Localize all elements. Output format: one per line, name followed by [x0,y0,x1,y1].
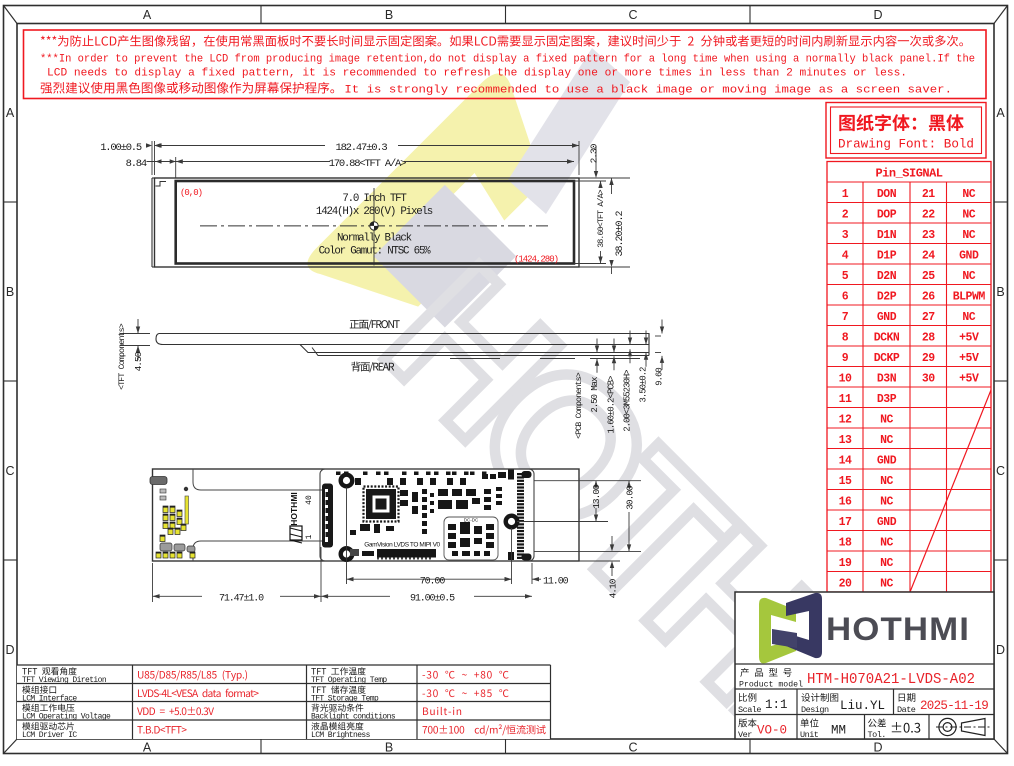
svg-text:38.60<TFT A/A>: 38.60<TFT A/A> [596,189,606,247]
svg-text:It is strongly recommended to: It is strongly recommended to use a blac… [344,85,952,97]
svg-text:LCM Operating Voltage: LCM Operating Voltage [22,713,111,722]
svg-text:Liu.YL: Liu.YL [840,699,885,713]
svg-text:13.00: 13.00 [591,484,602,509]
svg-text:D: D [873,8,882,22]
svg-text:DOP: DOP [877,208,897,221]
svg-text:C: C [628,8,637,22]
svg-text:182.47±0.3: 182.47±0.3 [335,142,387,154]
svg-text:HOTHMI: HOTHMI [289,492,299,526]
svg-text:27: 27 [922,311,935,324]
svg-text:Pin_SIGNAL: Pin_SIGNAL [875,167,942,181]
svg-text:(0,0): (0,0) [180,188,202,198]
svg-text:3: 3 [842,229,849,242]
svg-text:C: C [996,464,1005,478]
svg-text:D: D [996,643,1005,657]
svg-text:Unit: Unit [800,730,819,740]
svg-text:B: B [996,285,1004,299]
svg-text:NC: NC [962,229,975,242]
svg-text:26: 26 [922,290,935,303]
svg-text:2.00<3M55230H>: 2.00<3M55230H> [623,370,633,432]
svg-text:70.00: 70.00 [420,577,446,588]
svg-text:6: 6 [842,290,849,303]
svg-text:NC: NC [962,311,975,324]
svg-text:Color Gamut: NTSC 65%: Color Gamut: NTSC 65% [319,246,432,258]
svg-text:24: 24 [922,249,935,262]
svg-text:Drawing Font: Bold: Drawing Font: Bold [838,137,974,152]
svg-text:NC: NC [880,536,893,549]
svg-text:40: 40 [305,495,314,505]
svg-text:1: 1 [842,188,849,201]
svg-text:DCKP: DCKP [874,352,900,365]
svg-text:14: 14 [839,454,852,467]
svg-text:NC: NC [880,434,893,447]
svg-text:HOTHMI: HOTHMI [826,611,970,647]
svg-text:A: A [143,741,152,755]
svg-text:NC: NC [880,557,893,570]
svg-text:1.60±0.2<PCB>: 1.60±0.2<PCB> [607,376,617,434]
svg-text:VO-0: VO-0 [757,724,787,738]
svg-text:<PCB Components>: <PCB Components> [575,372,584,439]
svg-text:3.50±0.2: 3.50±0.2 [639,367,649,403]
svg-text:11: 11 [839,393,852,406]
svg-text:12: 12 [839,413,852,426]
svg-text:29: 29 [922,352,935,365]
svg-text:19: 19 [839,557,852,570]
svg-text:2: 2 [842,208,849,221]
svg-text:+5V: +5V [959,372,979,385]
svg-text:30.00: 30.00 [625,485,636,510]
svg-text:17: 17 [839,516,852,529]
svg-text:71.47±1.0: 71.47±1.0 [219,594,264,605]
svg-text:DCKN: DCKN [874,331,900,344]
svg-text:+5V: +5V [959,331,979,344]
svg-text:11.00: 11.00 [543,577,569,588]
svg-text:B: B [385,741,393,755]
svg-text:D: D [5,643,14,657]
svg-text:170.88<TFT A/A>: 170.88<TFT A/A> [329,158,406,170]
svg-text:GND: GND [877,516,897,529]
svg-text:LCM Driver IC: LCM Driver IC [22,731,77,740]
svg-text:D3P: D3P [877,393,897,406]
svg-text:4: 4 [842,249,849,262]
svg-text:25: 25 [922,270,935,283]
svg-text:D2P: D2P [877,290,897,303]
svg-text:10: 10 [839,372,852,385]
svg-text:2.50 Max: 2.50 Max [590,377,600,413]
svg-text:DON: DON [877,188,897,201]
svg-text:MM: MM [831,724,846,738]
svg-text:<TFT Components>: <TFT Components> [118,323,127,390]
svg-text:4.50: 4.50 [133,351,144,371]
svg-text:HTM-H070A21-LVDS-A02: HTM-H070A21-LVDS-A02 [807,672,975,688]
svg-text:D1N: D1N [877,229,897,242]
svg-text:5: 5 [842,270,849,283]
svg-text:7: 7 [842,311,849,324]
svg-text:8: 8 [842,331,849,344]
svg-text:+5V: +5V [959,352,979,365]
svg-text:1: 1 [305,534,314,539]
svg-text:30: 30 [922,372,935,385]
svg-text:NC: NC [962,270,975,283]
svg-text:GamVision LVDS TO MIPI V0: GamVision LVDS TO MIPI V0 [364,542,440,549]
svg-text:A: A [996,106,1005,120]
svg-text:15: 15 [839,475,852,488]
svg-text:NC: NC [962,208,975,221]
svg-text:1:1: 1:1 [765,698,788,712]
svg-text:2.30: 2.30 [589,143,600,163]
svg-text:16: 16 [839,495,852,508]
svg-text:GND: GND [877,311,897,324]
svg-text:9: 9 [842,352,849,365]
svg-text:22: 22 [922,208,935,221]
svg-text:9.60: 9.60 [655,368,665,386]
svg-text:D2N: D2N [877,270,897,283]
svg-text:***In order to prevent the LCD: ***In order to prevent the LCD from prod… [40,54,975,66]
svg-text:NC: NC [880,475,893,488]
svg-text:TFT Operating Temp: TFT Operating Temp [311,676,387,685]
svg-text:NC: NC [880,577,893,590]
svg-text:D3N: D3N [877,372,897,385]
svg-text:4.10: 4.10 [608,578,619,598]
svg-text:Design: Design [801,705,829,715]
svg-text:BLPWM: BLPWM [953,290,986,303]
svg-text:Date: Date [897,705,916,715]
svg-text:(1424,280): (1424,280) [514,255,558,265]
svg-text:GND: GND [959,249,979,262]
svg-text:NC: NC [962,188,975,201]
svg-text:2025-11-19: 2025-11-19 [920,699,988,713]
svg-text:TFT Storage Temp: TFT Storage Temp [311,695,379,704]
svg-text:13: 13 [839,434,852,447]
svg-text:A: A [6,106,15,120]
svg-text:TFT Viewing Diretion: TFT Viewing Diretion [22,676,107,685]
svg-text:Scale: Scale [738,705,761,715]
svg-text:B: B [385,8,393,22]
svg-text:38.20±0.2: 38.20±0.2 [615,211,626,257]
svg-text:Backlight conditions: Backlight conditions [311,713,396,722]
svg-text:23: 23 [922,229,935,242]
svg-text:D1P: D1P [877,249,897,262]
svg-text:8.84: 8.84 [126,158,147,170]
svg-text:Ver: Ver [738,730,752,740]
svg-text:91.00±0.5: 91.00±0.5 [410,594,455,605]
svg-text:LCD needs to display a fixed p: LCD needs to display a fixed pattern, it… [47,68,907,80]
svg-text:A: A [143,8,152,22]
svg-text:NC: NC [880,495,893,508]
svg-text:Product model: Product model [739,680,803,690]
svg-text:LCM Interface: LCM Interface [22,695,77,704]
svg-text:7.0 Inch TFT: 7.0 Inch TFT [342,193,407,205]
svg-text:1.00±0.5: 1.00±0.5 [100,142,142,154]
svg-text:D: D [873,741,882,755]
svg-text:C: C [628,741,637,755]
svg-text:GND: GND [877,454,897,467]
svg-text:Tol.: Tol. [868,730,886,740]
svg-text:C: C [5,464,14,478]
svg-text:18: 18 [839,536,852,549]
svg-text:28: 28 [922,331,935,344]
svg-text:LCM Brightness: LCM Brightness [311,731,371,740]
svg-text:NC: NC [880,413,893,426]
svg-text:B: B [6,285,14,299]
svg-text:DC-DC: DC-DC [464,518,479,523]
svg-text:21: 21 [922,188,935,201]
svg-text:20: 20 [839,577,852,590]
